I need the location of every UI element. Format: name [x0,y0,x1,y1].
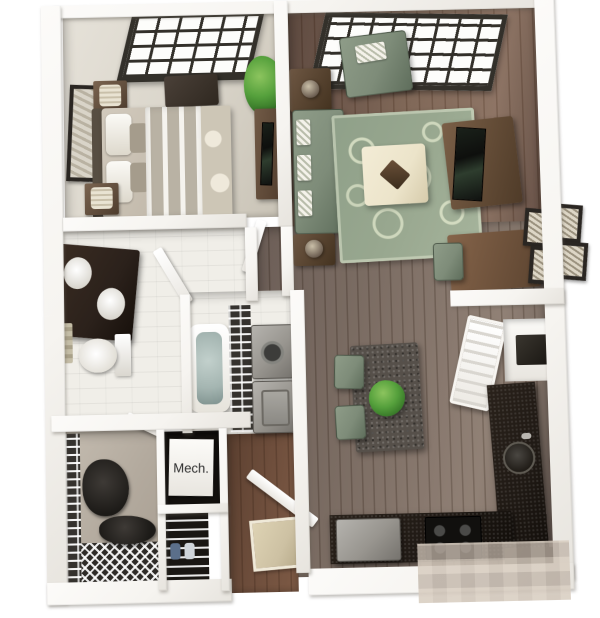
faucet [521,433,532,440]
kitchen-wall-stub [450,288,565,307]
bedroom-window [116,11,265,83]
shoe-closet [162,512,210,587]
oven [336,518,402,562]
dining-chair [334,404,366,440]
sink-basin [96,287,127,321]
mech-bottom-wall [157,503,228,514]
toilet-tank [115,334,132,377]
living-room-tv [452,127,486,202]
sofa-pillow [298,190,313,216]
sink-basin [62,256,93,290]
hall-wall-stub [281,226,295,296]
bottom-wall [47,579,232,606]
striped-duvet [145,106,205,218]
floral-throw [201,106,233,217]
bathroom-right-wall [245,227,259,301]
dining-chair [334,355,364,390]
mech-room-label: Mech. [173,460,209,476]
kitchen-sink [502,441,537,476]
washer [251,324,294,379]
dryer [252,380,295,433]
apartment-plan: Mech. [27,0,576,614]
sofa-pillow [297,155,312,181]
bed-bench [164,74,219,108]
storage-basket [99,84,121,106]
shoes [170,543,180,560]
shoes [184,543,194,560]
dryer-door [261,389,290,426]
bed-pillow [106,114,132,156]
desk-chair [433,242,464,280]
bedroom-tv [260,122,274,185]
bathtub [189,324,231,413]
storage-basket [91,187,113,209]
bathtub-water [196,332,223,405]
armchair [339,30,414,99]
floor-plan-render: Mech. [0,0,600,618]
sofa-pillow [296,119,310,145]
mech-room-sign: Mech. [168,439,213,496]
watermark-mosaic [417,540,571,603]
